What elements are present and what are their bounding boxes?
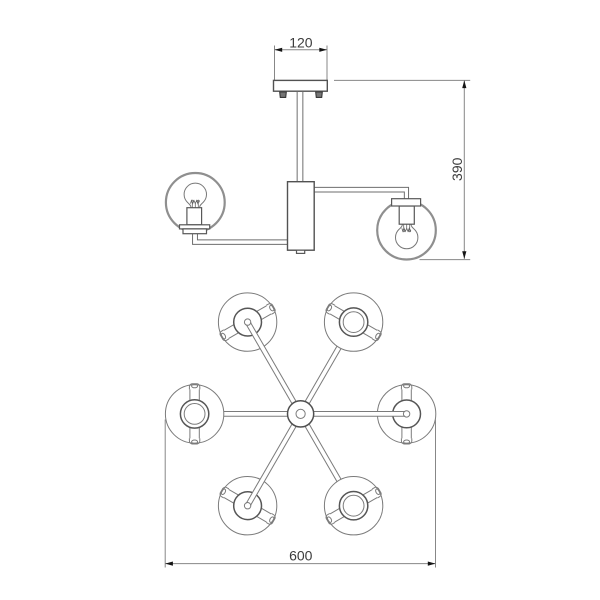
svg-text:120: 120 [289, 34, 313, 50]
svg-text:390: 390 [449, 157, 465, 181]
svg-text:600: 600 [289, 547, 313, 563]
